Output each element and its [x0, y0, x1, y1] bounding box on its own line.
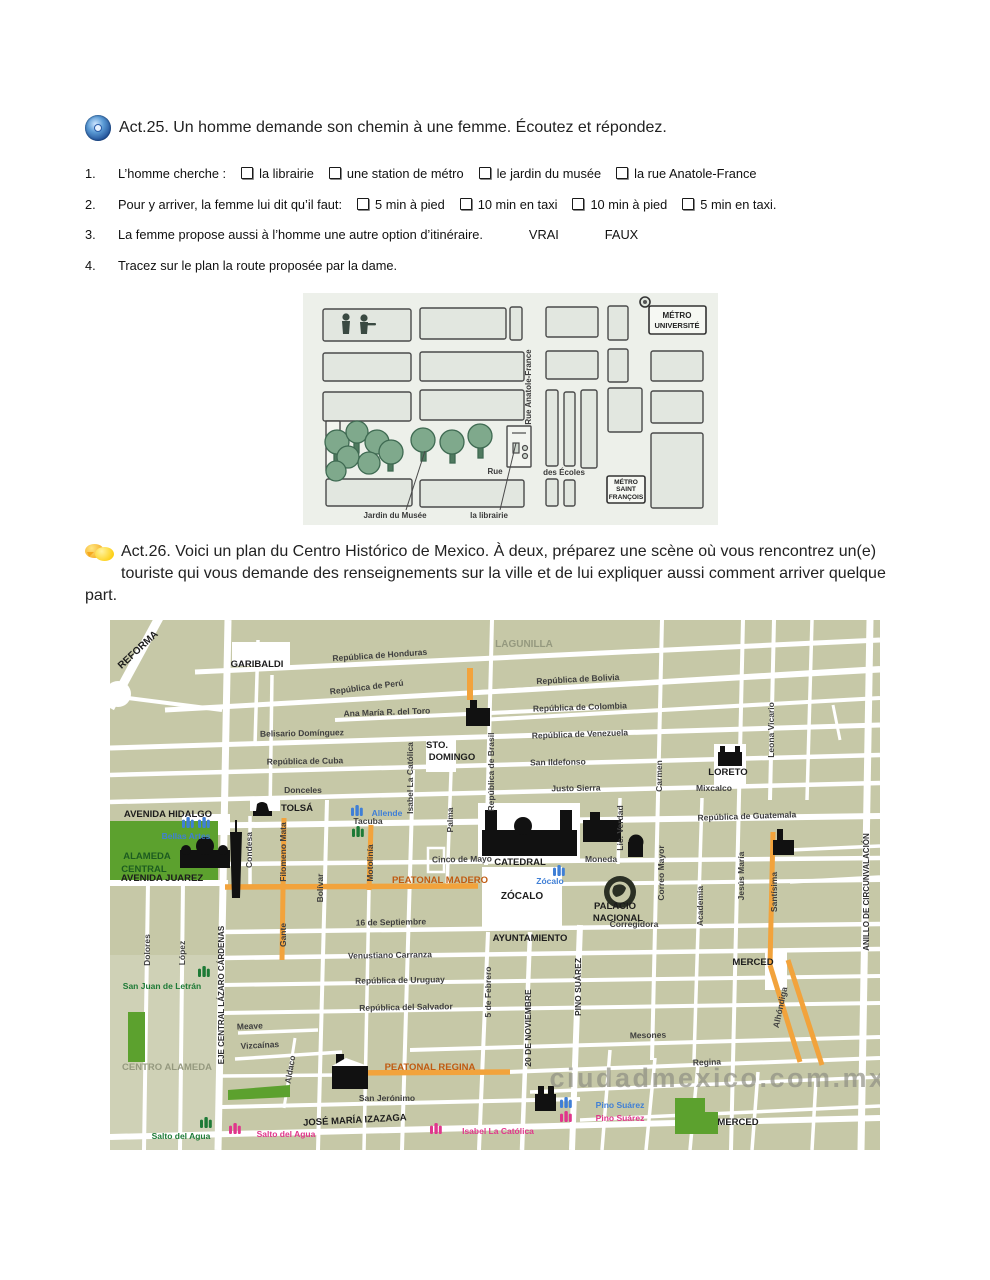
- map-label: Zócalo: [536, 876, 563, 886]
- map-label: Bellas Artes: [162, 831, 211, 841]
- map-label: AYUNTAMIENTO: [493, 933, 568, 944]
- map-label: Belisario Domínguez: [260, 727, 344, 738]
- option-label: une station de métro: [347, 166, 464, 181]
- checkbox-icon: [241, 167, 253, 179]
- map-label: Rue Anatole-France: [524, 349, 533, 425]
- speech-bubbles-icon: [85, 542, 115, 566]
- map-label: UNIVERSITÉ: [654, 321, 699, 330]
- map-label: LORETO: [708, 767, 747, 778]
- map-label: San Ildefonso: [530, 757, 586, 768]
- map-label: DOMINGO: [429, 752, 475, 763]
- map-label: Gante: [278, 923, 288, 947]
- checkbox-icon: [460, 198, 472, 210]
- map-label: Pino Suárez: [596, 1100, 645, 1110]
- checkbox-icon: [357, 198, 369, 210]
- map-label: República de Brasil: [486, 733, 496, 812]
- map-label: PEATONAL MADERO: [392, 875, 488, 886]
- question-item: 4.Tracez sur le plan la route proposée p…: [85, 258, 935, 273]
- map-label: 5 de Febrero: [483, 966, 493, 1017]
- catedral-dome-icon: [514, 817, 532, 835]
- map-label: Jesús María: [736, 851, 746, 900]
- question-text: La femme propose aussi à l’homme une aut…: [118, 227, 483, 242]
- map-label: CENTRO ALAMEDA: [122, 1062, 212, 1073]
- map-label: ALAMEDA: [123, 851, 171, 862]
- map-label: ANILLO DE CIRCUNVALACIÓN: [862, 833, 871, 951]
- checkbox-option: 5 min en taxi.: [682, 197, 776, 212]
- map-label: STO.: [426, 740, 448, 751]
- map-label: Isabel La Católica: [405, 742, 415, 814]
- question-item: 3.La femme propose aussi à l’homme une a…: [85, 227, 935, 242]
- dome-building-base: [628, 842, 643, 857]
- option-label: la rue Anatole-France: [634, 166, 756, 181]
- map-label: Donceles: [284, 785, 322, 795]
- map-label: Venustiano Carranza: [348, 949, 433, 960]
- question-number: 1.: [85, 166, 118, 181]
- map-label: FRANÇOIS: [609, 494, 644, 501]
- map-label: Condesa: [244, 832, 254, 868]
- checkbox-option: 5 min à pied: [357, 197, 445, 212]
- map-label: PEATONAL REGINA: [385, 1062, 476, 1073]
- act25-questions: 1.L’homme cherche :la librairieune stati…: [85, 166, 935, 288]
- map-label: PINO SUÁREZ: [573, 958, 583, 1016]
- checkbox-icon: [479, 167, 491, 179]
- question-number: 3.: [85, 227, 118, 242]
- map-label: Rue: [487, 467, 503, 476]
- map-label: Correo Mayor: [656, 845, 666, 901]
- map-label: PALACIO: [594, 901, 636, 912]
- question-text: Tracez sur le plan la route proposée par…: [118, 258, 397, 273]
- option-label: 10 min à pied: [590, 197, 667, 212]
- map-label: San Jerónimo: [359, 1093, 415, 1103]
- map-label: Salto del Agua: [152, 1131, 211, 1141]
- question-item: 1.L’homme cherche :la librairieune stati…: [85, 166, 935, 181]
- map-label: Pino Suárez: [596, 1113, 645, 1123]
- checkbox-option: une station de métro: [329, 166, 464, 181]
- worksheet-page: { "colors":{ "map_bg":"#c6c8a7","map_bg_…: [0, 0, 990, 1280]
- checkbox-option: la rue Anatole-France: [616, 166, 756, 181]
- map-label: Jardin du Musée: [363, 511, 427, 520]
- map-label: Bolívar: [315, 873, 325, 903]
- question-text: L’homme cherche :: [118, 166, 226, 181]
- map-label: Mesones: [630, 1030, 667, 1041]
- map-label: Lic. Verdad: [615, 805, 625, 850]
- map-label: ciudadmexico.com.mx: [549, 1063, 880, 1093]
- map-label: López: [177, 941, 187, 966]
- map-label: Allende: [372, 808, 403, 818]
- act26-paragraph: Act.26. Voici un plan du Centro Históric…: [85, 543, 886, 604]
- map-label: la librairie: [470, 511, 508, 520]
- option-label: la librairie: [259, 166, 314, 181]
- checkbox-icon: [682, 198, 694, 210]
- map-label: 16 de Septiembre: [356, 916, 427, 927]
- map-label: Leona Vicario: [766, 702, 776, 758]
- map-label: Mixcalco: [696, 783, 732, 793]
- checkbox-icon: [572, 198, 584, 210]
- map-label: Filomeno Mata: [278, 822, 288, 882]
- map-label: AVENIDA JUAREZ: [121, 873, 204, 884]
- question-text: Pour y arriver, la femme lui dit qu’il f…: [118, 197, 342, 212]
- map-label: San Juan de Letrán: [123, 981, 201, 991]
- vrai-faux-option: FAUX: [605, 227, 638, 242]
- act25-header: Act.25. Un homme demande son chemin à un…: [85, 115, 925, 141]
- option-label: 10 min en taxi: [478, 197, 558, 212]
- map-label: EJE CENTRAL LÁZARO CÁRDENAS: [217, 925, 226, 1064]
- option-label: le jardin du musée: [497, 166, 602, 181]
- option-label: 5 min à pied: [375, 197, 445, 212]
- map-label: Academia: [695, 886, 705, 926]
- map-label: República del Salvador: [359, 1001, 453, 1013]
- act26-centro-historico-map: REFORMAGARIBALDILAGUNILLARepública de Ho…: [110, 620, 880, 1150]
- act25-title: Act.25. Un homme demande son chemin à un…: [119, 119, 667, 137]
- map-label: MÉTRO: [663, 311, 692, 320]
- checkbox-icon: [616, 167, 628, 179]
- map-label: Vizcaínas: [240, 1039, 279, 1051]
- map-label: Palma: [445, 807, 455, 832]
- map-label: TOLSÁ: [281, 803, 313, 814]
- checkbox-option: 10 min en taxi: [460, 197, 558, 212]
- option-label: 5 min en taxi.: [700, 197, 776, 212]
- checkbox-option: 10 min à pied: [572, 197, 667, 212]
- map-label: MERCED: [717, 1117, 758, 1128]
- map-label: des Écoles: [543, 468, 585, 477]
- map-label: Cinco de Mayo: [432, 853, 492, 864]
- map-label: GARIBALDI: [231, 659, 284, 670]
- map-label: Salto del Agua: [257, 1129, 316, 1139]
- checkbox-icon: [329, 167, 341, 179]
- map-label: Moneda: [585, 854, 617, 864]
- map-label: Carmen: [654, 760, 664, 792]
- question-number: 4.: [85, 258, 118, 273]
- act25-street-map: MÉTROUNIVERSITÉRue Anatole-FranceRuedes …: [303, 293, 718, 525]
- map-label: LAGUNILLA: [495, 639, 553, 650]
- map-label: Justo Sierra: [551, 783, 601, 794]
- map-label: CATEDRAL: [494, 857, 546, 868]
- question-number: 2.: [85, 197, 118, 212]
- map-label: SAINT: [616, 486, 636, 493]
- map-label: República de Cuba: [267, 755, 344, 766]
- checkbox-option: le jardin du musée: [479, 166, 602, 181]
- checkbox-option: la librairie: [241, 166, 314, 181]
- question-item: 2.Pour y arriver, la femme lui dit qu’il…: [85, 197, 935, 212]
- map-label: Dolores: [142, 934, 152, 966]
- map-label: 20 DE NOVIEMBRE: [523, 989, 533, 1067]
- act26-instruction: Act.26. Voici un plan du Centro Históric…: [85, 541, 907, 607]
- map-label: MÉTRO: [614, 477, 638, 486]
- audio-cd-icon: [85, 115, 111, 141]
- map-label: Isabel La Católica: [462, 1126, 534, 1136]
- map-label: Meave: [237, 1020, 264, 1031]
- vrai-faux-option: VRAI: [529, 227, 559, 242]
- map-label: República de Uruguay: [355, 974, 445, 986]
- map-label: Santísima: [769, 872, 779, 912]
- map-label: MERCED: [732, 957, 773, 968]
- map-label: Motolinía: [365, 844, 375, 882]
- map-label: ZÓCALO: [501, 889, 543, 902]
- map-label: AVENIDA HIDALGO: [124, 809, 212, 820]
- map-label: Corregidora: [610, 919, 659, 929]
